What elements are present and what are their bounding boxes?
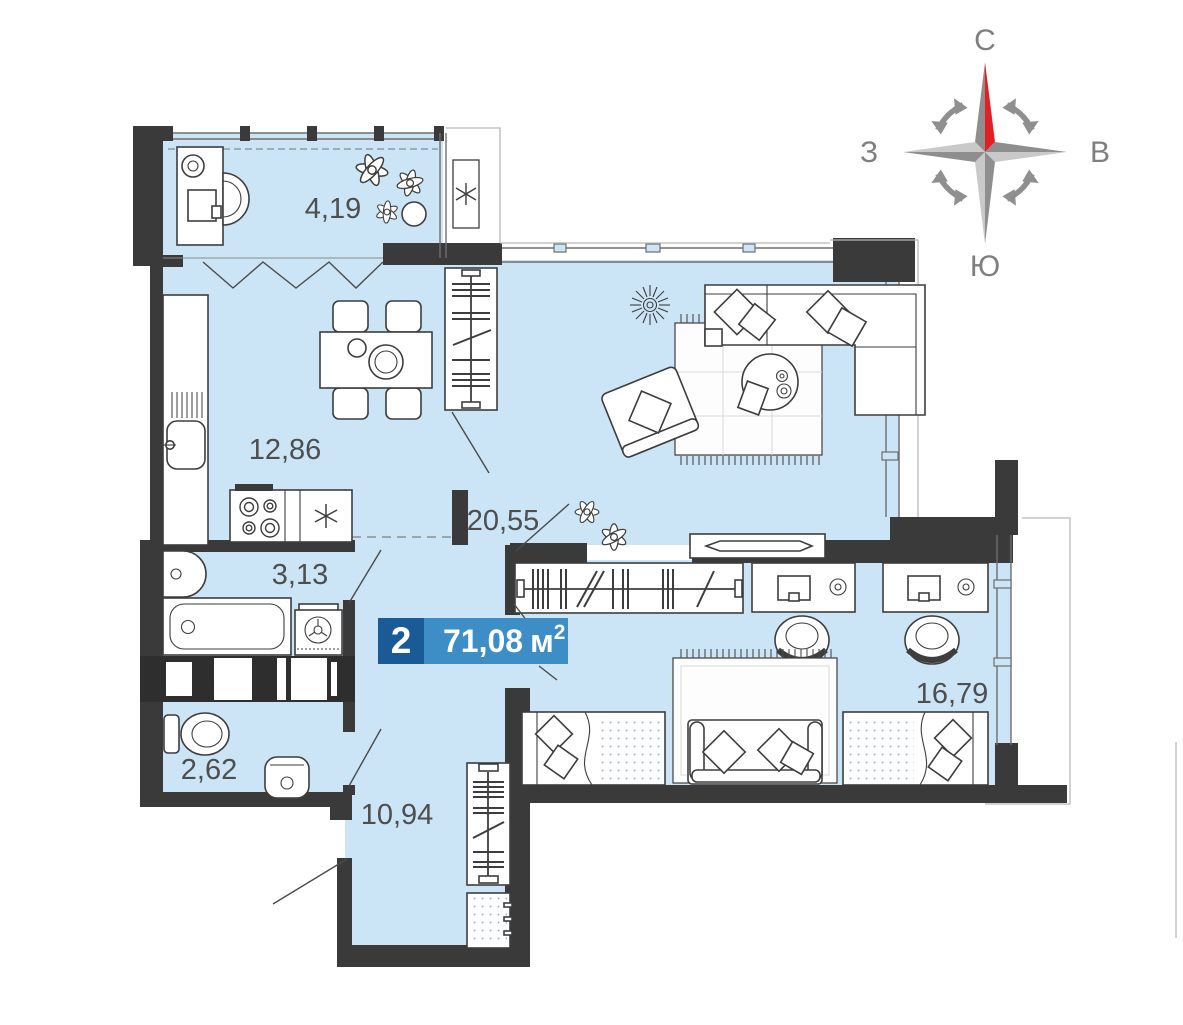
- desk-2: [883, 563, 988, 612]
- compass-label-east: В: [1090, 136, 1110, 169]
- toilet: [164, 713, 229, 755]
- badge-area-text: 71,08м2: [443, 621, 565, 659]
- badge-rooms-count: 2: [391, 620, 412, 661]
- wall-loggia-kitchen-left: [163, 255, 183, 267]
- area-label-bathroom: 3,13: [272, 559, 328, 591]
- compass-star: [903, 62, 1067, 244]
- wall-living-ne-corner: [833, 238, 915, 282]
- neighbour-unit: [453, 160, 479, 228]
- compass-label-west: З: [860, 136, 878, 169]
- wc-sink: [265, 757, 309, 798]
- hallway-furniture: [467, 763, 512, 948]
- wall-loggia-kitchen-right: [383, 243, 502, 265]
- area-label-hallway: 10,94: [361, 799, 434, 831]
- area-label-living: 20,55: [467, 505, 540, 537]
- plate-icon: [348, 339, 366, 357]
- chair: [333, 388, 368, 419]
- bedroom-wardrobe: [515, 563, 743, 613]
- chair: [386, 388, 421, 419]
- entrance-door-swing: [273, 859, 347, 904]
- washing-machine: [295, 604, 342, 655]
- wall-hall-left: [337, 858, 352, 952]
- tv-console: [690, 534, 825, 558]
- wall-bathroom-right: [343, 600, 355, 658]
- plate-icon: [369, 345, 403, 379]
- wall-kitchen-stub: [452, 490, 468, 545]
- wall-wc-bottom: [140, 792, 352, 807]
- bath-sink: [163, 551, 206, 597]
- chair: [333, 301, 368, 332]
- area-label-bedroom: 16,79: [916, 678, 989, 710]
- bed-left: [522, 712, 665, 785]
- floor-bedroom-window-band: [997, 535, 1011, 745]
- desk-1: [752, 563, 855, 612]
- plant-pot-icon: [402, 202, 426, 226]
- wall-bedroom-bottom: [505, 785, 1067, 803]
- bed-right: [843, 712, 988, 785]
- area-label-wc: 2,62: [181, 754, 237, 786]
- wall-entry-jamb: [330, 792, 352, 820]
- shoe-bench: [467, 893, 512, 948]
- desk-lamp-icon: [182, 155, 204, 177]
- area-label-loggia: 4,19: [305, 193, 361, 225]
- floor-plan-page: 4,19 12,86 20,55 3,13 2,62 10,94 16,79 2…: [0, 0, 1183, 1025]
- hall-wardrobe: [467, 763, 510, 885]
- area-label-kitchen: 12,86: [249, 434, 322, 466]
- tv-icon: [706, 541, 812, 551]
- drainboard-icon: [172, 392, 202, 418]
- kitchen-counter: [163, 295, 208, 545]
- wall-loggia-left: [133, 126, 163, 260]
- compass-label-north: С: [974, 24, 996, 57]
- wall-kitchen-left: [150, 258, 163, 548]
- bathtub: [163, 598, 291, 655]
- wall-wc-right-top: [343, 700, 355, 732]
- desk-chair: [905, 616, 959, 664]
- chair: [386, 301, 421, 332]
- living-wardrobe: [445, 268, 497, 410]
- ventilation-shaft: [140, 656, 355, 702]
- compass-label-south: Ю: [970, 250, 1000, 283]
- living-window-north: [502, 244, 833, 262]
- floor-plan-drawing: 4,19 12,86 20,55 3,13 2,62 10,94 16,79 2…: [0, 0, 1183, 1025]
- wall-bedroom-window-south: [995, 743, 1018, 791]
- compass-north-red: [985, 62, 995, 152]
- wall-wc-right-stub: [343, 785, 355, 795]
- bedroom-sofa: [688, 720, 822, 784]
